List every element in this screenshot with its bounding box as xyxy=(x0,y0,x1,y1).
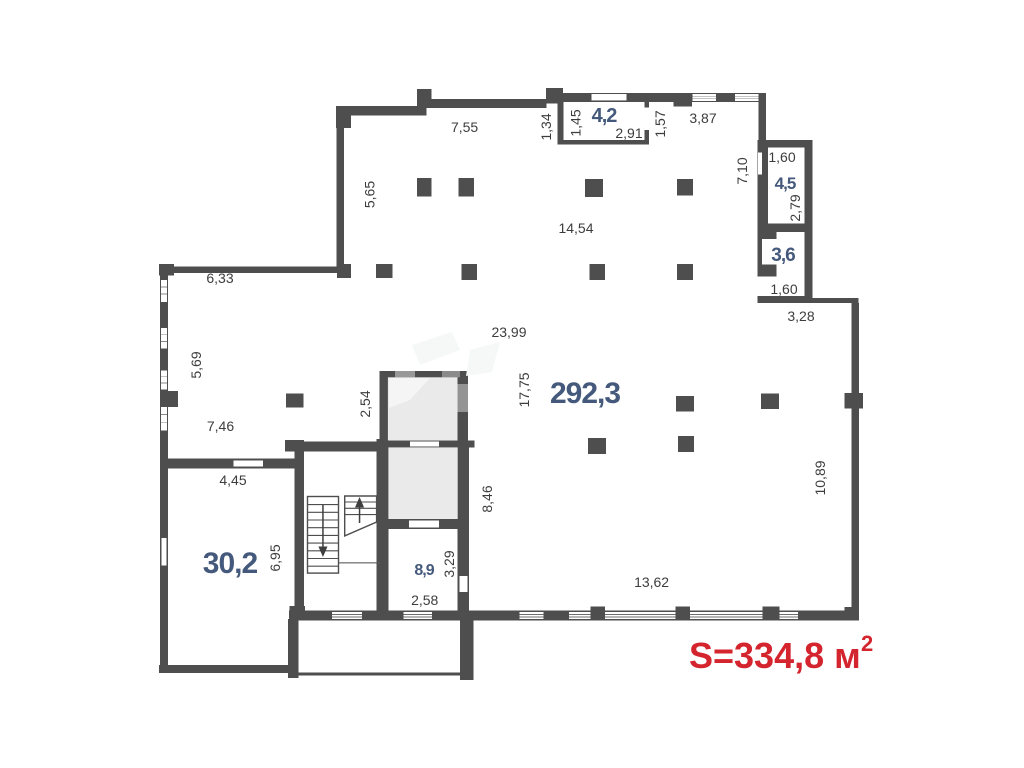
svg-text:6,95: 6,95 xyxy=(267,544,283,571)
svg-text:2,79: 2,79 xyxy=(787,194,803,221)
svg-text:7,55: 7,55 xyxy=(451,119,478,135)
svg-text:1,60: 1,60 xyxy=(770,281,797,297)
svg-text:4,5: 4,5 xyxy=(775,174,796,193)
svg-text:17,75: 17,75 xyxy=(516,372,532,407)
svg-text:8,9: 8,9 xyxy=(414,562,434,579)
svg-text:1,34: 1,34 xyxy=(538,113,554,140)
svg-text:5,65: 5,65 xyxy=(362,181,378,208)
svg-text:1,57: 1,57 xyxy=(652,110,668,137)
svg-text:S=334,8 м: S=334,8 м xyxy=(689,635,861,676)
svg-text:13,62: 13,62 xyxy=(634,574,669,590)
svg-text:14,54: 14,54 xyxy=(558,220,593,236)
svg-text:1,45: 1,45 xyxy=(568,109,584,136)
svg-text:5,69: 5,69 xyxy=(188,351,204,378)
svg-text:3,87: 3,87 xyxy=(689,110,716,126)
svg-text:4,45: 4,45 xyxy=(219,472,246,488)
svg-text:6,33: 6,33 xyxy=(206,270,233,286)
svg-text:4,2: 4,2 xyxy=(592,105,618,127)
svg-text:10,89: 10,89 xyxy=(812,460,828,495)
svg-text:23,99: 23,99 xyxy=(491,324,526,340)
svg-text:3,29: 3,29 xyxy=(441,550,457,577)
svg-text:2,58: 2,58 xyxy=(411,592,438,608)
svg-text:1,60: 1,60 xyxy=(768,149,795,165)
svg-text:3,28: 3,28 xyxy=(787,308,814,324)
svg-text:292,3: 292,3 xyxy=(550,377,620,410)
svg-text:2,54: 2,54 xyxy=(357,390,373,417)
svg-text:7,46: 7,46 xyxy=(207,418,234,434)
svg-text:2,91: 2,91 xyxy=(615,125,642,141)
svg-text:30,2: 30,2 xyxy=(203,547,258,580)
svg-text:7,10: 7,10 xyxy=(734,157,750,184)
svg-text:2: 2 xyxy=(861,631,873,656)
svg-text:8,46: 8,46 xyxy=(479,485,495,512)
svg-text:3,6: 3,6 xyxy=(771,245,795,266)
